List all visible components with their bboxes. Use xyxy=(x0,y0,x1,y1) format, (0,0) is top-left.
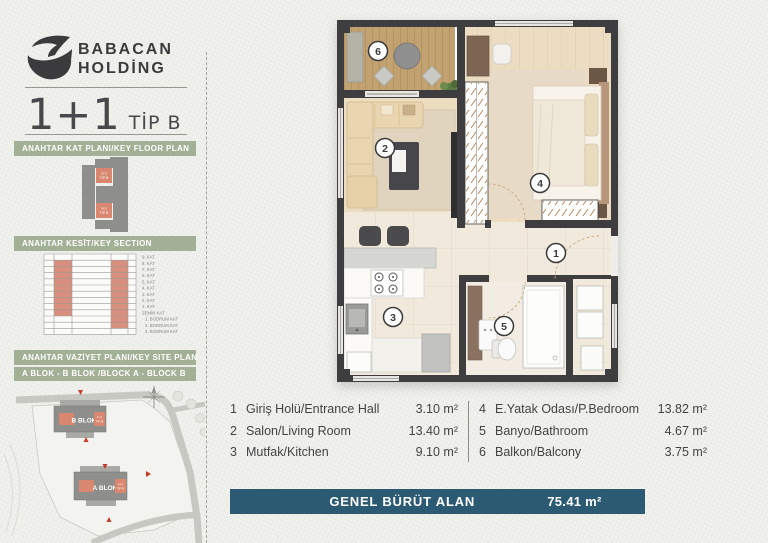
block-b-unit-tag2: TİP B xyxy=(96,419,103,424)
gross-area-label: GENEL BÜRÜT ALAN xyxy=(329,489,475,514)
wardrobe xyxy=(465,82,488,224)
legend-name: Salon/Living Room xyxy=(246,421,351,443)
banner-key-section: ANAHTAR KESİT/KEY SECTION xyxy=(14,236,196,251)
floor-plan-drawing: 1 2 3 4 5 xyxy=(337,20,618,382)
svg-text:8. KAT: 8. KAT xyxy=(142,261,155,266)
toilet xyxy=(492,338,516,360)
svg-text:6: 6 xyxy=(375,46,381,58)
bar-stool xyxy=(387,226,409,246)
section-highlight-left xyxy=(54,260,72,316)
corner-unit xyxy=(347,352,371,372)
room-number-4: 4 xyxy=(531,174,550,193)
svg-text:3. KAT: 3. KAT xyxy=(142,292,155,297)
shower xyxy=(523,286,564,368)
section-highlight-right xyxy=(111,260,128,328)
svg-text:3. BODRUM KAT: 3. BODRUM KAT xyxy=(145,329,178,334)
legend-left-column: 1 Giriş Holü/Entrance Hall 3.10 m² 2 Sal… xyxy=(230,399,458,464)
legend-name: Giriş Holü/Entrance Hall xyxy=(246,399,379,421)
room-number-6: 6 xyxy=(369,42,388,61)
banner-blocks: A BLOK - B BLOK /BLOCK A - BLOCK B xyxy=(14,367,196,381)
entrance-opening xyxy=(611,236,618,276)
niche-unit xyxy=(581,346,603,370)
pillow xyxy=(403,105,415,115)
banner-key-site-plan: ANAHTAR VAZİYET PLANI/KEY SITE PLAN xyxy=(14,350,196,365)
chaise xyxy=(347,176,377,208)
block-a-label: A BLOK xyxy=(93,485,118,492)
key-section-diagram: 9. KAT 8. KAT 7. KAT 6. KAT 5. KAT 4. KA… xyxy=(40,252,202,338)
brochure-page: BABACAN HOLDİNG 1+1 TİP B ANAHTAR KAT PL… xyxy=(0,0,768,543)
legend-item: 4 E.Yatak Odası/P.Bedroom 13.82 m² xyxy=(479,399,707,421)
svg-text:3: 3 xyxy=(390,312,396,324)
legend-item: 5 Banyo/Bathroom 4.67 m² xyxy=(479,421,707,443)
sink xyxy=(346,304,368,334)
unit-tag-line2: TİP B xyxy=(100,210,110,215)
chair xyxy=(493,44,511,64)
cabinet xyxy=(372,338,422,372)
bar-counter xyxy=(344,248,436,268)
room-number-5: 5 xyxy=(495,317,514,336)
block-b-unit-tag1: 1+1 xyxy=(97,415,102,419)
gross-area-value: 75.41 m² xyxy=(547,489,601,514)
block-b-label: B BLOK xyxy=(72,418,97,425)
svg-text:7. KAT: 7. KAT xyxy=(142,267,155,272)
legend-item: 3 Mutfak/Kitchen 9.10 m² xyxy=(230,442,458,464)
pillow xyxy=(585,144,598,186)
key-site-plan-diagram: B BLOK 1+1 TİP B A BLOK 1+1 TİP B xyxy=(2,384,205,543)
legend-num: 3 xyxy=(230,442,239,464)
balcony-table xyxy=(394,43,420,69)
highlighted-unit-bottom: 1+1 TİP B xyxy=(96,203,112,218)
section-grid xyxy=(44,254,136,335)
room-number-2: 2 xyxy=(376,139,395,158)
legend-divider xyxy=(468,401,469,462)
svg-text:2: 2 xyxy=(382,143,388,155)
planter xyxy=(347,32,363,82)
nightstand xyxy=(589,68,607,84)
floor-plan: 1 2 3 4 5 xyxy=(337,20,618,382)
legend-num: 6 xyxy=(479,442,488,464)
block-a-unit-tag2: TİP B xyxy=(117,486,124,491)
highlighted-unit-top: 1+1 TİP B xyxy=(96,168,112,183)
svg-text:9. KAT: 9. KAT xyxy=(142,255,155,260)
legend-area: 13.82 m² xyxy=(658,399,707,421)
block-a-unit-tag1: 1+1 xyxy=(118,482,123,486)
unit-type-title: 1+1 TİP B xyxy=(27,90,182,140)
unit-type-big: 1+1 xyxy=(27,90,121,140)
svg-text:5. KAT: 5. KAT xyxy=(142,279,155,284)
svg-text:2. KAT: 2. KAT xyxy=(142,298,155,303)
room-number-3: 3 xyxy=(384,308,403,327)
svg-text:6. KAT: 6. KAT xyxy=(142,273,155,278)
room-number-1: 1 xyxy=(547,244,566,263)
svg-text:2. BODRUM KAT: 2. BODRUM KAT xyxy=(145,323,178,328)
dresser xyxy=(467,36,489,76)
legend-name: E.Yatak Odası/P.Bedroom xyxy=(495,399,639,421)
babacan-logo-icon xyxy=(26,34,74,82)
banner-key-floor-plan: ANAHTAR KAT PLANI/KEY FLOOR PLAN xyxy=(14,141,196,156)
unit-type-small: TİP B xyxy=(129,112,182,134)
legend-area: 9.10 m² xyxy=(416,442,458,464)
legend-num: 2 xyxy=(230,421,239,443)
legend-num: 5 xyxy=(479,421,488,443)
brand-line2: HOLDİNG xyxy=(78,59,173,78)
unit-tag-line1: 1+1 xyxy=(101,207,107,211)
rule-bottom xyxy=(25,134,187,135)
legend-item: 1 Giriş Holü/Entrance Hall 3.10 m² xyxy=(230,399,458,421)
dashed-divider xyxy=(206,52,207,543)
room-legend: 1 Giriş Holü/Entrance Hall 3.10 m² 2 Sal… xyxy=(230,399,708,464)
svg-text:1. BODRUM KAT: 1. BODRUM KAT xyxy=(145,317,178,322)
legend-name: Mutfak/Kitchen xyxy=(246,442,329,464)
table-tray xyxy=(392,150,406,172)
legend-item: 2 Salon/Living Room 13.40 m² xyxy=(230,421,458,443)
stove xyxy=(371,270,403,296)
section-floor-labels: 9. KAT 8. KAT 7. KAT 6. KAT 5. KAT 4. KA… xyxy=(142,255,178,334)
block-a-building: A BLOK 1+1 TİP B xyxy=(74,466,127,506)
svg-text:ZEMİN KAT: ZEMİN KAT xyxy=(142,310,165,315)
legend-item: 6 Balkon/Balcony 3.75 m² xyxy=(479,442,707,464)
legend-area: 3.75 m² xyxy=(665,442,707,464)
rule-top xyxy=(25,87,187,88)
brand-line1: BABACAN xyxy=(78,40,173,59)
legend-area: 4.67 m² xyxy=(665,421,707,443)
legend-name: Balkon/Balcony xyxy=(495,442,581,464)
legend-name: Banyo/Bathroom xyxy=(495,421,588,443)
svg-text:4. KAT: 4. KAT xyxy=(142,286,155,291)
legend-area: 3.10 m² xyxy=(416,399,458,421)
bar-stool xyxy=(359,226,381,246)
legend-num: 4 xyxy=(479,399,488,421)
terrain-contours xyxy=(4,444,20,536)
hall-closet xyxy=(577,286,603,310)
legend-num: 1 xyxy=(230,399,239,421)
legend-right-column: 4 E.Yatak Odası/P.Bedroom 13.82 m² 5 Ban… xyxy=(479,399,707,464)
svg-text:1. KAT: 1. KAT xyxy=(142,304,155,309)
svg-text:4: 4 xyxy=(537,178,543,190)
tv-unit xyxy=(451,132,457,218)
unit-tag-line1: 1+1 xyxy=(101,172,107,176)
unit-tag-line2: TİP B xyxy=(100,175,110,180)
pillow xyxy=(585,94,598,136)
svg-text:1: 1 xyxy=(553,248,559,260)
key-floor-plan-diagram: 1+1 TİP B 1+1 TİP B xyxy=(82,157,128,232)
brand-wordmark: BABACAN HOLDİNG xyxy=(78,40,173,78)
gross-area-bar: GENEL BÜRÜT ALAN 75.41 m² xyxy=(230,489,645,514)
hall-closet xyxy=(577,312,603,338)
legend-area: 13.40 m² xyxy=(409,421,458,443)
appliance xyxy=(422,334,450,372)
svg-text:5: 5 xyxy=(501,321,507,333)
pillow xyxy=(381,105,393,115)
